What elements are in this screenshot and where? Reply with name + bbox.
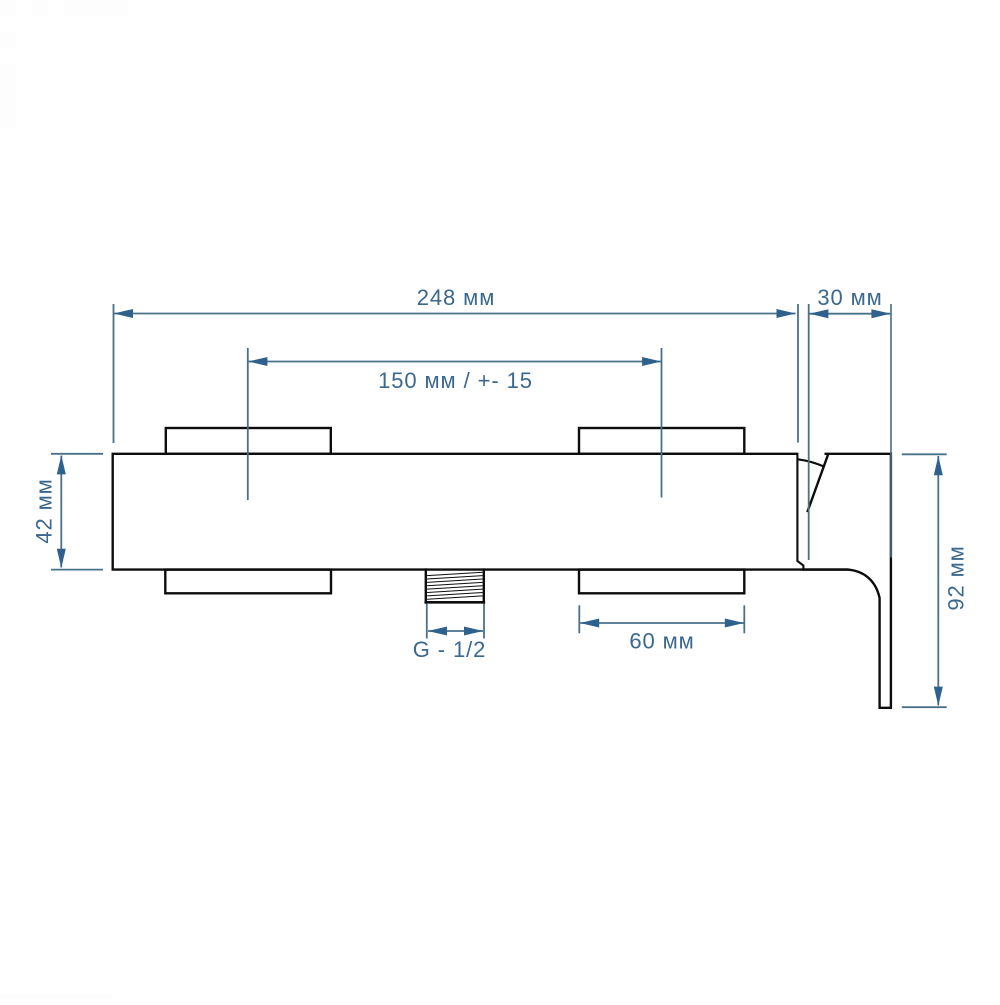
svg-text:60 мм: 60 мм bbox=[629, 629, 694, 654]
svg-text:42 мм: 42 мм bbox=[32, 478, 57, 543]
svg-text:92 мм: 92 мм bbox=[944, 545, 969, 610]
svg-text:30 мм: 30 мм bbox=[817, 285, 882, 310]
svg-text:G - 1/2: G - 1/2 bbox=[413, 637, 487, 662]
svg-text:248 мм: 248 мм bbox=[417, 285, 495, 310]
svg-text:150 мм / +- 15: 150 мм / +- 15 bbox=[378, 368, 533, 393]
